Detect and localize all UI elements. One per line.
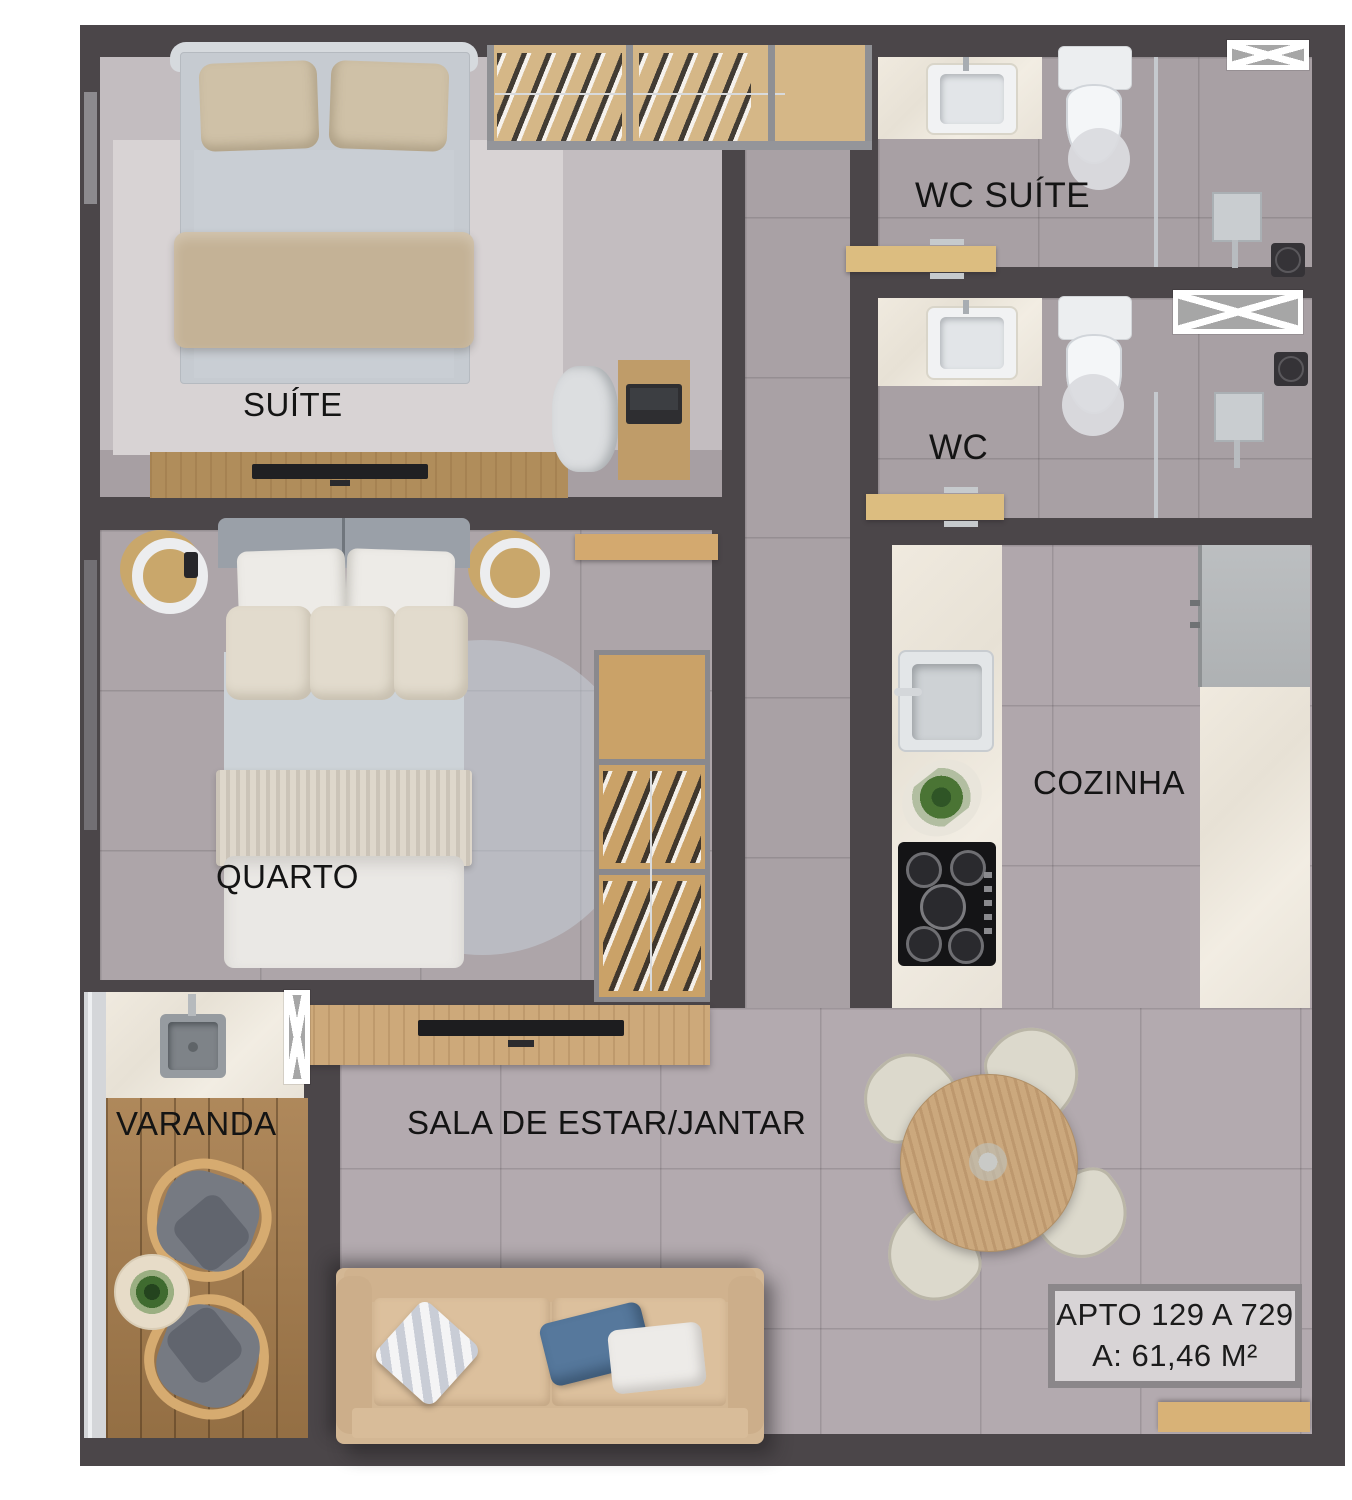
suite-bed-pillow-right: [329, 60, 450, 152]
wc-suite-sliding-door: [846, 246, 996, 272]
wc-suite-sink: [926, 63, 1018, 135]
wc-shower-glass: [1154, 392, 1158, 518]
sala-tv: [418, 1020, 624, 1036]
suite-closet-divider-3: [768, 45, 775, 150]
cooktop-burner-1: [906, 852, 942, 888]
wc-suite-shower-head: [1212, 192, 1262, 242]
suite-closet: [487, 45, 872, 150]
sala-tv-stand: [508, 1040, 534, 1047]
suite-tv: [252, 464, 428, 479]
shaft-marker-top-icon: [1227, 40, 1309, 70]
room-label-wc: WC: [929, 428, 988, 468]
kitchen-sink: [898, 650, 994, 752]
suite-bed-blanket: [174, 232, 474, 348]
quarto-phone: [184, 552, 198, 578]
entry-ledge: [1158, 1402, 1310, 1432]
wc-suite-shower-arm: [1232, 240, 1238, 268]
quarto-bed-pillow-cream-1: [226, 606, 312, 700]
kitchen-half-wall: [850, 530, 892, 1008]
laundry-sink-drain: [188, 1042, 198, 1052]
suite-closet-clothes-left: [497, 53, 622, 141]
wc-mirror: [1062, 374, 1124, 436]
laundry-sink: [160, 1014, 226, 1078]
sofa-back: [344, 1268, 756, 1302]
suite-closet-clothes-mid: [639, 53, 751, 141]
wc-shower-arm: [1234, 440, 1240, 468]
room-label-wc-suite: WC SUÍTE: [915, 176, 1090, 216]
kitchen-sink-bowl: [912, 664, 982, 740]
suite-closet-divider-4: [865, 45, 872, 150]
wc-suite-faucet: [963, 57, 969, 71]
room-label-sala: SALA DE ESTAR/JANTAR: [407, 1104, 806, 1142]
cooktop-knobs: [984, 872, 992, 936]
quarto-coat-shelf: [575, 534, 718, 560]
cooktop-burner-center: [920, 884, 966, 930]
wc-door-handle-top: [944, 487, 978, 493]
quarto-wardrobe: [594, 650, 710, 1002]
room-label-suite: SUÍTE: [243, 386, 343, 424]
suite-closet-divider-2: [626, 45, 633, 150]
quarto-nightstand-left: [120, 530, 202, 608]
kitchen-fridge: [1198, 545, 1310, 687]
quarto-lamp-right: [480, 538, 550, 608]
wc-suite-door-handle-top: [930, 239, 964, 245]
apartment-area: A: 61,46 M²: [1092, 1336, 1258, 1377]
wc-sliding-door: [866, 494, 1004, 520]
wc-shower-head: [1214, 392, 1264, 442]
wc-sink-bowl: [940, 317, 1004, 369]
kitchen-counter-right: [1200, 687, 1310, 1008]
suite-window-slit: [84, 92, 97, 204]
cooktop-burner-4: [948, 928, 984, 964]
sofa-pillow-white: [607, 1321, 707, 1394]
kitchen-faucet: [894, 688, 922, 696]
suite-closet-divider-1: [487, 45, 494, 150]
varanda-side-table: [114, 1254, 190, 1330]
wc-sink: [926, 306, 1018, 380]
quarto-wardrobe-rail: [650, 771, 652, 991]
quarto-bed-pillow-cream-2: [310, 606, 396, 700]
quarto-wardrobe-clothes-bottom: [603, 881, 701, 991]
wc-faucet: [963, 300, 969, 314]
sofa-front-edge: [352, 1408, 748, 1438]
cooktop-burner-3: [906, 926, 942, 962]
suite-closet-rail: [495, 93, 785, 95]
suite-desk-laptop: [626, 384, 682, 424]
suite-tv-stand: [330, 480, 350, 486]
quarto-bed-knit-blanket: [216, 770, 472, 866]
room-label-quarto: QUARTO: [216, 858, 359, 896]
apartment-info-box: APTO 129 A 729 A: 61,46 M²: [1048, 1284, 1302, 1388]
room-label-cozinha: COZINHA: [1033, 764, 1185, 802]
quarto-nightstand-right: [468, 530, 546, 604]
wc-door-handle-bottom: [944, 521, 978, 527]
shaft-marker-varanda-icon: [284, 990, 310, 1084]
wc-shower-drain: [1274, 352, 1308, 386]
quarto-wardrobe-clothes-mid: [603, 771, 701, 863]
suite-bed: [170, 42, 478, 384]
kitchen-fridge-handle-2: [1190, 622, 1200, 628]
suite-bed-pillow-left: [199, 60, 320, 152]
suite-desk-laptop-screen: [630, 388, 678, 410]
corridor-floor: [745, 57, 850, 1008]
varanda-window-highlight: [88, 992, 92, 1438]
quarto-wardrobe-divider-2: [599, 869, 705, 875]
sofa: [336, 1268, 764, 1444]
wc-suite-sink-bowl: [940, 74, 1004, 124]
floor-plan-screenshot: { "rooms": { "suite": {"label": "SUÍTE"}…: [0, 0, 1352, 1500]
cooktop-burner-2: [950, 850, 986, 886]
varanda-plant: [128, 1268, 176, 1316]
wc-suite-shower-drain: [1271, 243, 1305, 277]
apartment-number: APTO 129 A 729: [1056, 1295, 1293, 1336]
kitchen-cooktop: [898, 842, 996, 966]
kitchen-fridge-handle-1: [1190, 600, 1200, 606]
wc-suite-door-handle-bottom: [930, 273, 964, 279]
dining-table-vase: [966, 1140, 1010, 1184]
room-label-varanda: VARANDA: [116, 1105, 277, 1143]
wc-suite-shower-glass: [1154, 57, 1158, 267]
quarto-bed-pillow-cream-3: [394, 606, 468, 700]
suite-closet-base-strip: [487, 141, 872, 150]
suite-desk-chair: [552, 366, 618, 472]
shaft-marker-middle-icon: [1173, 290, 1303, 334]
quarto-wardrobe-divider-1: [599, 759, 705, 765]
laundry-faucet: [188, 994, 196, 1016]
quarto-window-slit: [84, 560, 97, 830]
